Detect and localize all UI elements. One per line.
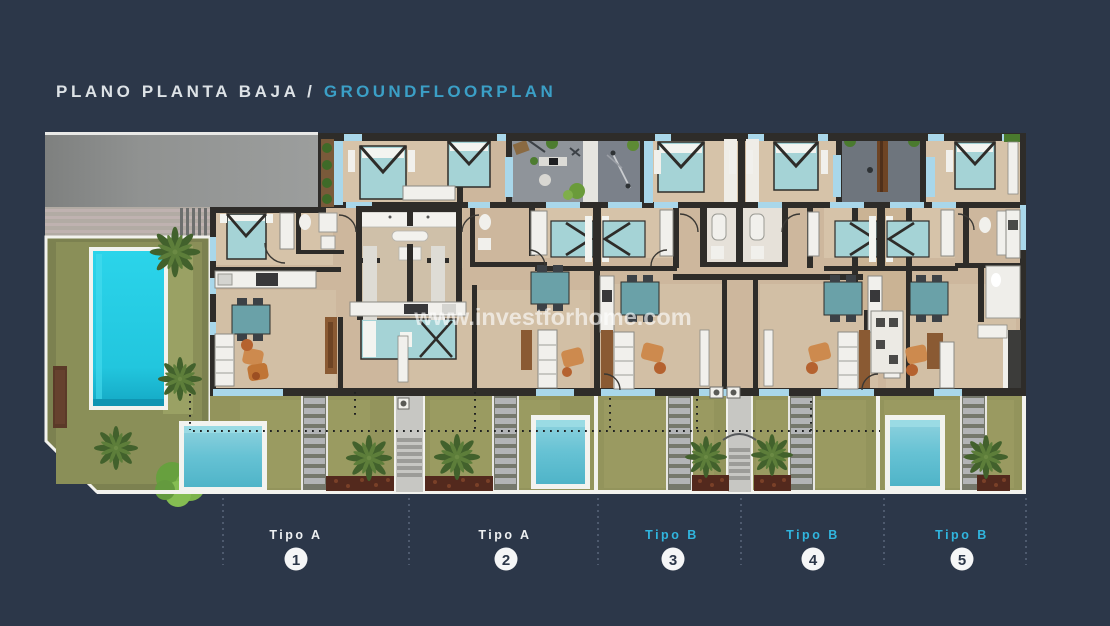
svg-text:Tipo B: Tipo B xyxy=(786,528,840,542)
svg-text:5: 5 xyxy=(958,552,966,569)
svg-text:www.investforhome.com: www.investforhome.com xyxy=(413,304,691,330)
svg-text:Tipo B: Tipo B xyxy=(645,528,699,542)
svg-text:Tipo A: Tipo A xyxy=(478,528,531,542)
svg-text:Tipo A: Tipo A xyxy=(269,528,322,542)
svg-text:4: 4 xyxy=(809,552,818,569)
svg-text:1: 1 xyxy=(292,552,300,569)
svg-text:3: 3 xyxy=(669,552,677,569)
svg-text:Tipo B: Tipo B xyxy=(935,528,989,542)
svg-text:2: 2 xyxy=(502,552,510,569)
svg-text:PLANO PLANTA BAJA / GROUNDFLOO: PLANO PLANTA BAJA / GROUNDFLOORPLAN xyxy=(56,82,556,101)
